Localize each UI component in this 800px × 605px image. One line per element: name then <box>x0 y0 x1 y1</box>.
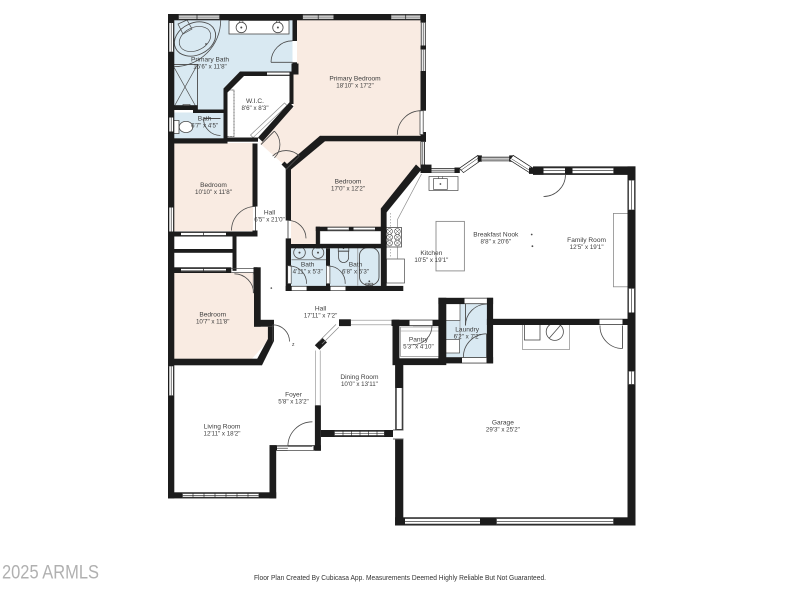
svg-text:10'5" x 19'1": 10'5" x 19'1" <box>414 257 448 264</box>
svg-text:18'10" x 17'2": 18'10" x 17'2" <box>336 82 373 89</box>
svg-text:Bedroom: Bedroom <box>199 311 226 318</box>
svg-text:8'8" x 20'6": 8'8" x 20'6" <box>481 238 512 245</box>
svg-text:10'7" x 11'8": 10'7" x 11'8" <box>196 318 229 325</box>
svg-text:4'11" x 5'3": 4'11" x 5'3" <box>293 269 323 276</box>
svg-text:Primary Bath: Primary Bath <box>191 57 229 64</box>
svg-text:Bath: Bath <box>301 262 315 269</box>
svg-text:6'7" x 4'5": 6'7" x 4'5" <box>191 123 218 130</box>
svg-text:Hall: Hall <box>315 306 327 313</box>
svg-text:Primary Bedroom: Primary Bedroom <box>329 75 381 82</box>
svg-text:Foyer: Foyer <box>285 391 303 398</box>
svg-text:Family Room: Family Room <box>567 237 606 244</box>
svg-text:Pantry: Pantry <box>409 337 429 344</box>
svg-text:Bath: Bath <box>198 116 212 123</box>
svg-text:Laundry: Laundry <box>455 326 480 333</box>
svg-text:17'11" x 7'2": 17'11" x 7'2" <box>304 313 337 320</box>
svg-text:Dining Room: Dining Room <box>340 374 379 381</box>
svg-text:5'8" x 13'2": 5'8" x 13'2" <box>278 398 309 405</box>
svg-text:6'5" x 21'0": 6'5" x 21'0" <box>254 217 285 224</box>
svg-text:6'8" x 5'3": 6'8" x 5'3" <box>342 269 369 276</box>
svg-text:Living Room: Living Room <box>204 423 241 430</box>
svg-text:Hall: Hall <box>264 210 276 217</box>
svg-text:Breakfast Nook: Breakfast Nook <box>473 231 519 238</box>
svg-text:5'3" x 4'10": 5'3" x 4'10" <box>403 344 434 351</box>
svg-text:Bedroom: Bedroom <box>335 179 362 186</box>
svg-text:17'0" x 12'2": 17'0" x 12'2" <box>331 186 365 193</box>
svg-text:15'6" x 11'8": 15'6" x 11'8" <box>193 64 226 71</box>
svg-text:W.I.C.: W.I.C. <box>246 98 264 105</box>
svg-text:Bath: Bath <box>349 262 363 269</box>
svg-text:29'3" x 25'2": 29'3" x 25'2" <box>486 427 520 434</box>
svg-text:Bedroom: Bedroom <box>200 182 227 189</box>
svg-text:Floor Plan Created By Cubicasa: Floor Plan Created By Cubicasa App. Meas… <box>254 573 546 582</box>
svg-text:10'0" x 13'11": 10'0" x 13'11" <box>341 381 378 388</box>
svg-text:10'10" x 11'8": 10'10" x 11'8" <box>195 189 232 196</box>
svg-text:12'11" x 18'2": 12'11" x 18'2" <box>204 430 241 437</box>
svg-text:2025 ARMLS: 2025 ARMLS <box>2 563 99 584</box>
svg-text:Kitchen: Kitchen <box>420 250 442 257</box>
svg-text:Garage: Garage <box>492 420 514 427</box>
svg-text:12'5" x 19'1": 12'5" x 19'1" <box>570 244 604 251</box>
svg-text:8'6" x 8'3": 8'6" x 8'3" <box>241 105 268 112</box>
svg-text:6'2" x 7'2": 6'2" x 7'2" <box>454 333 481 340</box>
